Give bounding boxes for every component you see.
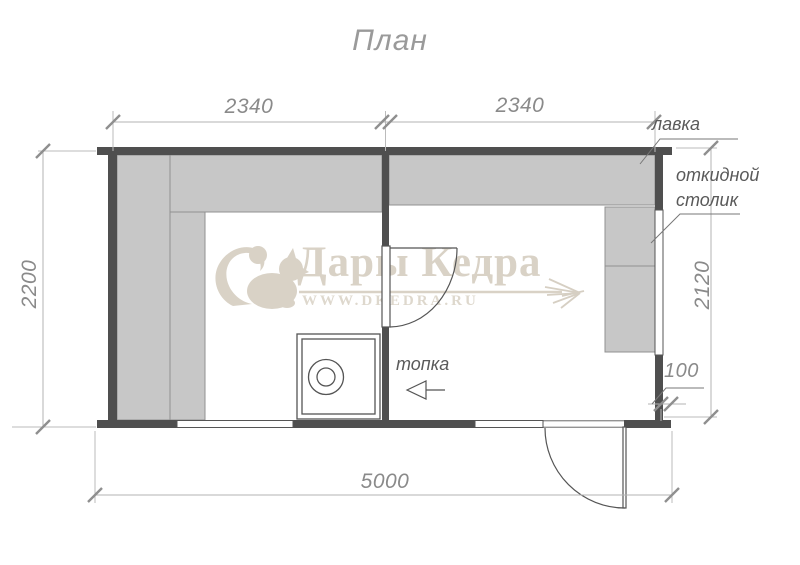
interior-door	[382, 246, 457, 327]
label-bench: лавка	[652, 114, 700, 135]
bench-left-wall	[117, 155, 170, 420]
dimension-top-left: 2340	[199, 95, 299, 119]
page-title: План	[300, 24, 480, 58]
squirrel-icon	[215, 246, 309, 309]
wheat-icon	[545, 279, 584, 308]
bench-resroom-right-upper	[605, 207, 655, 266]
bench-steamroom-step	[170, 212, 205, 420]
wall-bottom-1	[97, 420, 177, 428]
wall-partition-lower	[382, 327, 389, 420]
dimension-right-height: 2120	[691, 235, 715, 335]
label-folding-table-line1: откидной	[676, 163, 759, 188]
exterior-door	[545, 427, 626, 508]
window-steamroom	[177, 421, 293, 428]
dimension-top-right: 2340	[470, 94, 570, 118]
bench-resroom-right-lower	[605, 266, 655, 352]
bench-resroom-top	[389, 155, 655, 205]
dimension-left-height: 2200	[18, 234, 42, 334]
stove-direction-arrow-icon	[407, 381, 445, 399]
label-folding-table: откидной столик	[676, 163, 759, 213]
wall-left	[108, 155, 117, 420]
dimension-table-offset: 100	[664, 360, 699, 383]
window-restroom	[475, 421, 543, 428]
floor-plan-canvas: Дары Кедра WWW.DKEDRA.RU	[0, 0, 800, 565]
label-stove: топка	[396, 354, 449, 375]
label-folding-table-line2: столик	[676, 188, 759, 213]
wall-partition-upper	[382, 155, 389, 246]
wall-bottom-2	[293, 420, 475, 428]
stove	[297, 334, 380, 419]
wall-bottom-3	[624, 420, 671, 428]
dimension-overall-width: 5000	[335, 470, 435, 494]
wall-top	[97, 147, 672, 155]
bench-steamroom-top	[170, 155, 382, 212]
door-opening-lines	[543, 421, 624, 427]
